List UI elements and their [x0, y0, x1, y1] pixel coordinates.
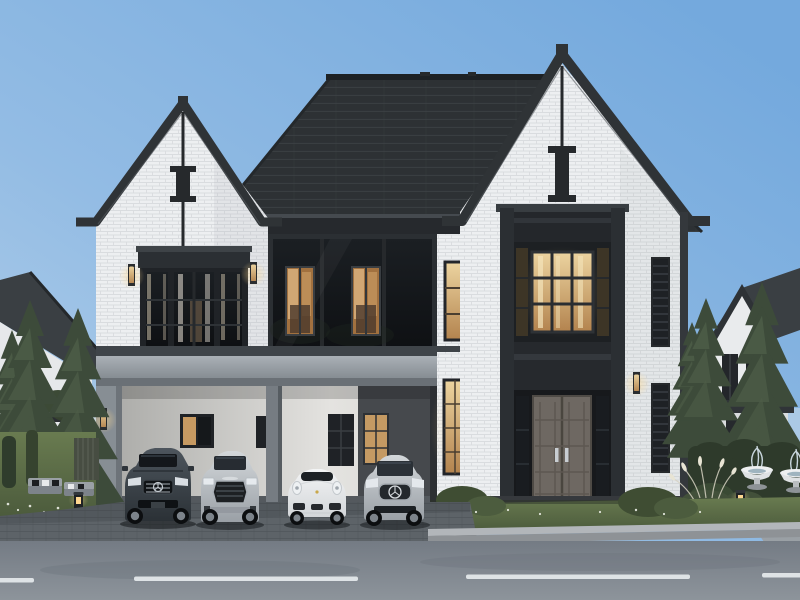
brand-badge — [222, 477, 238, 481]
window-cornice — [136, 246, 252, 252]
entrance-transom-window — [514, 246, 610, 338]
headlight — [246, 478, 257, 485]
entrance-sidelight-upper — [516, 248, 528, 336]
windshield — [301, 472, 333, 481]
architectural-render — [0, 0, 800, 600]
grille — [143, 480, 173, 494]
entrance-door — [533, 396, 591, 508]
balcony-glass-wall — [250, 234, 465, 354]
grille — [379, 484, 411, 500]
entrance-bay — [496, 204, 629, 520]
headlight — [203, 478, 214, 485]
cypress-shrub — [26, 430, 38, 486]
brand-badge — [315, 490, 318, 493]
eave-trim — [238, 214, 472, 218]
entrance-sidelight-lower — [596, 396, 609, 506]
louver-window — [652, 384, 669, 472]
louver-window — [652, 258, 669, 346]
wall-sconce — [241, 261, 267, 287]
carport-pillar-middle — [266, 386, 282, 522]
wall-sconce — [119, 263, 145, 289]
entrance-sidelight-lower — [516, 396, 529, 506]
cypress-shrub — [2, 436, 16, 488]
lit-interior-window — [352, 267, 380, 335]
render-canvas — [0, 0, 800, 600]
carport-window-lit — [364, 414, 388, 464]
carport-window — [328, 414, 354, 466]
grille — [213, 481, 247, 503]
entrance-sidelight-upper — [597, 248, 609, 336]
triple-window — [140, 268, 248, 350]
door-handle — [555, 448, 559, 462]
carport-window — [180, 414, 214, 448]
door-handle — [565, 448, 569, 462]
lit-interior-window — [286, 267, 314, 335]
carport-fascia-top — [96, 346, 470, 356]
carport-fascia — [96, 356, 470, 378]
wall-sconce — [624, 371, 650, 397]
outdoor-sofa — [28, 478, 62, 494]
